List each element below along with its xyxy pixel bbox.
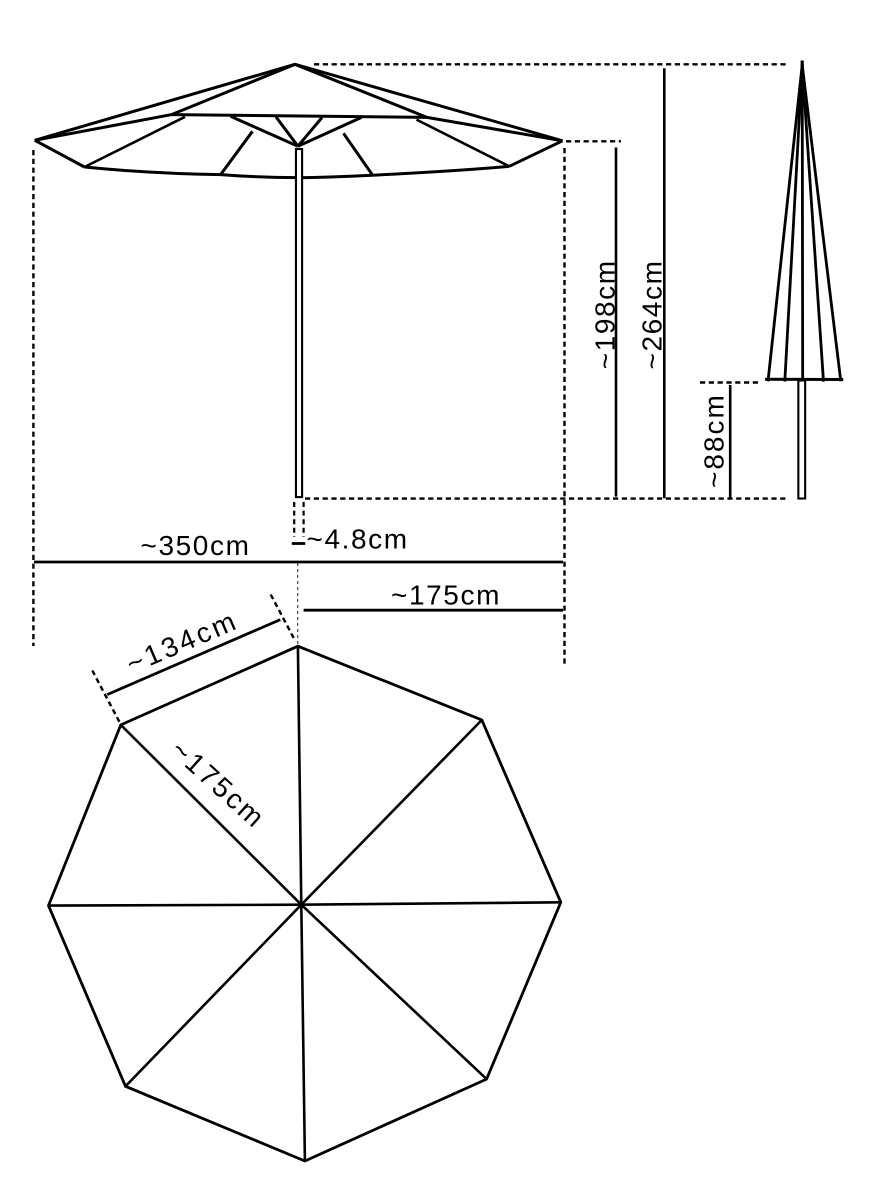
svg-text:~88cm: ~88cm (699, 393, 730, 488)
svg-text:~198cm: ~198cm (590, 259, 621, 369)
svg-text:~350cm: ~350cm (141, 530, 251, 561)
svg-text:~175cm: ~175cm (391, 580, 501, 611)
svg-text:~4.8cm: ~4.8cm (307, 523, 409, 554)
svg-text:~264cm: ~264cm (636, 260, 667, 370)
